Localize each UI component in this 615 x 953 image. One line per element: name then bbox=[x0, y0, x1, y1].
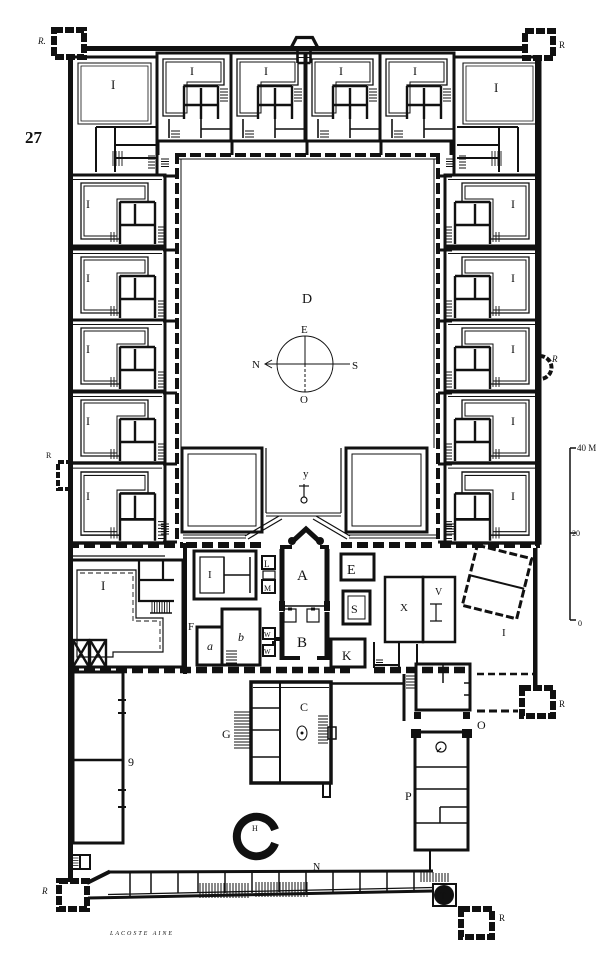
svg-text:I: I bbox=[86, 414, 90, 428]
svg-text:A: A bbox=[297, 568, 308, 584]
svg-text:N: N bbox=[252, 359, 260, 371]
svg-text:R: R bbox=[46, 451, 52, 460]
svg-text:V: V bbox=[435, 587, 443, 598]
svg-text:F: F bbox=[188, 621, 194, 633]
svg-text:I: I bbox=[86, 271, 90, 285]
svg-text:K: K bbox=[342, 648, 352, 663]
svg-text:b: b bbox=[238, 630, 244, 644]
svg-text:I: I bbox=[111, 77, 115, 92]
svg-text:I: I bbox=[86, 489, 90, 503]
svg-text:S: S bbox=[352, 360, 358, 372]
svg-text:I: I bbox=[190, 64, 194, 78]
svg-text:E: E bbox=[347, 563, 356, 578]
svg-text:D: D bbox=[302, 292, 312, 307]
svg-text:R: R bbox=[41, 886, 48, 896]
svg-text:I: I bbox=[511, 197, 515, 211]
svg-text:I: I bbox=[86, 197, 90, 211]
svg-text:N: N bbox=[313, 862, 320, 873]
svg-text:S: S bbox=[351, 602, 358, 616]
svg-text:T: T bbox=[440, 891, 446, 901]
svg-text:L: L bbox=[264, 559, 270, 569]
svg-text:O: O bbox=[477, 718, 486, 732]
svg-text:R: R bbox=[559, 699, 565, 709]
svg-text:W: W bbox=[264, 631, 271, 639]
svg-text:X: X bbox=[400, 602, 408, 614]
svg-text:E: E bbox=[301, 324, 308, 336]
svg-text:y: y bbox=[303, 468, 309, 480]
svg-text:H: H bbox=[252, 824, 258, 833]
svg-text:R: R bbox=[551, 354, 558, 364]
svg-text:I: I bbox=[494, 80, 498, 95]
svg-text:20: 20 bbox=[572, 529, 580, 538]
svg-text:C: C bbox=[300, 700, 308, 714]
svg-text:a: a bbox=[207, 639, 213, 653]
svg-text:I: I bbox=[413, 64, 417, 78]
svg-text:R: R bbox=[499, 913, 505, 923]
svg-text:I: I bbox=[502, 627, 506, 639]
svg-text:0: 0 bbox=[578, 619, 582, 628]
svg-text:I: I bbox=[511, 342, 515, 356]
svg-text:G: G bbox=[222, 727, 231, 741]
svg-text:W: W bbox=[264, 648, 271, 656]
svg-text:I: I bbox=[101, 578, 105, 593]
svg-text:B: B bbox=[297, 635, 307, 651]
svg-text:I: I bbox=[86, 342, 90, 356]
svg-text:40 M: 40 M bbox=[577, 443, 596, 453]
svg-text:I: I bbox=[264, 64, 268, 78]
svg-text:O: O bbox=[300, 394, 308, 406]
svg-text:I: I bbox=[208, 569, 212, 581]
svg-text:I: I bbox=[511, 489, 515, 503]
svg-text:9: 9 bbox=[128, 755, 134, 769]
svg-text:P: P bbox=[405, 789, 412, 803]
svg-text:R.: R. bbox=[37, 36, 46, 46]
svg-text:I: I bbox=[511, 414, 515, 428]
svg-text:I: I bbox=[339, 64, 343, 78]
svg-text:I: I bbox=[511, 271, 515, 285]
svg-text:27: 27 bbox=[25, 128, 43, 147]
svg-text:R: R bbox=[559, 40, 565, 50]
svg-text:M: M bbox=[264, 584, 271, 593]
svg-text:LACOSTE AINE: LACOSTE AINE bbox=[109, 931, 174, 937]
